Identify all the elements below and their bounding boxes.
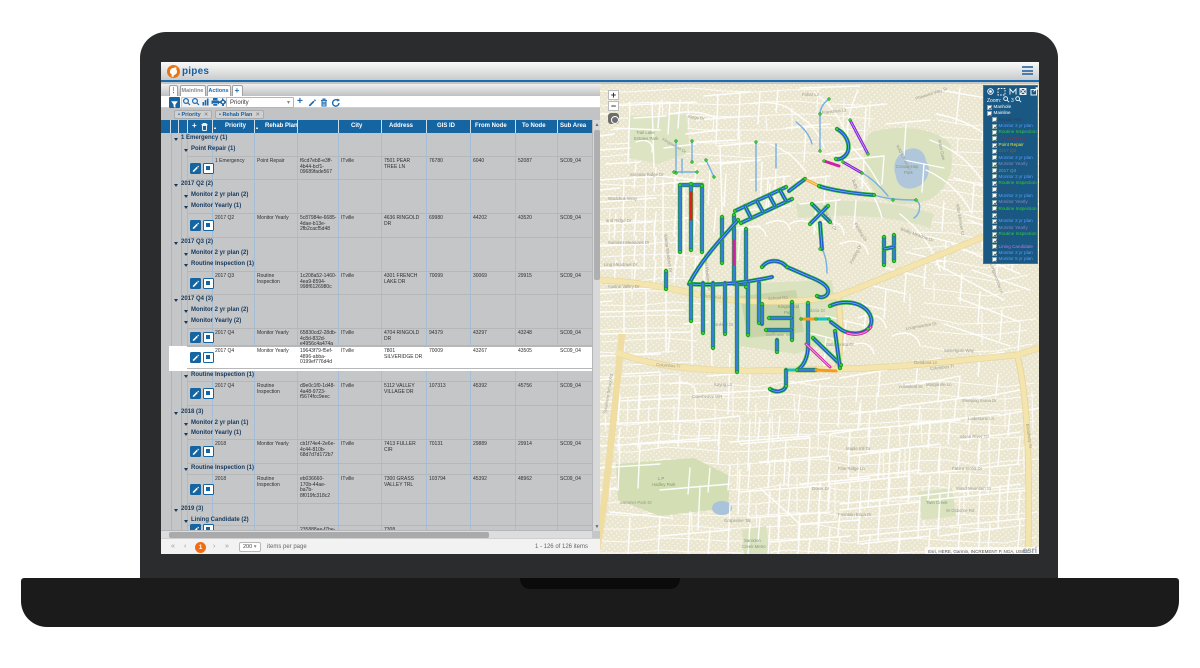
svg-text:Doser Dr: Doser Dr [812,486,830,491]
svg-text:Siosd Mountain St: Siosd Mountain St [956,486,992,491]
svg-text:Creek Metro: Creek Metro [742,544,766,549]
svg-text:Wodchuk Wray: Wodchuk Wray [608,196,638,201]
svg-text:Sleeping Siona Dr: Sleeping Siona Dr [962,398,997,403]
svg-text:Grapevine Tal: Grapevine Tal [724,518,750,523]
svg-text:Fohar Ln: Fohar Ln [802,92,820,97]
svg-text:Estates Park: Estates Park [634,136,659,141]
svg-text:Colerbeave WR: Colerbeave WR [692,394,722,399]
svg-text:Fountain Briga Dr: Fountain Briga Dr [838,512,872,517]
svg-text:Yellowleaf Dr: Yellowleaf Dr [898,384,923,389]
svg-text:L P: L P [658,476,664,481]
svg-text:Lodestone Ln: Lodestone Ln [968,416,995,421]
svg-text:Deadona Ln: Deadona Ln [914,360,938,365]
svg-text:Maple Inlf Dr: Maple Inlf Dr [846,446,871,451]
svg-text:Sweetgum Way: Sweetgum Way [944,348,975,353]
svg-text:routine Valley Dr: routine Valley Dr [608,284,640,289]
svg-text:Balladonica Dr: Balladonica Dr [826,342,855,347]
svg-text:Trail Lake: Trail Lake [636,130,655,135]
svg-text:Ling Meadows Dr: Ling Meadows Dr [604,262,638,267]
svg-text:Fine Ridge Ln: Fine Ridge Ln [838,466,865,471]
svg-text:Kayrig Ln: Kayrig Ln [714,382,733,387]
svg-text:W Osborne Rd: W Osborne Rd [946,508,975,513]
svg-text:and Ridge Dr: and Ridge Dr [606,218,632,223]
svg-text:Sanixton: Sanixton [744,538,761,543]
svg-text:Conow Hap: Conow Hap [896,164,919,169]
svg-text:Twin Creek: Twin Creek [926,500,948,505]
svg-text:Fabira Siona Dr: Fabira Siona Dr [952,466,983,471]
svg-text:Summer Park Dr: Summer Park Dr [620,500,653,505]
svg-text:Hadley Park: Hadley Park [652,482,676,487]
svg-text:Stone River Td: Stone River Td [960,434,989,439]
svg-text:Margarete Ln: Margarete Ln [926,382,952,387]
svg-text:Summer Meadows Dr: Summer Meadows Dr [608,240,650,245]
svg-text:Soleasa Ridge Dr: Soleasa Ridge Dr [630,172,664,177]
svg-text:Park: Park [904,170,914,175]
svg-text:Kingswood: Kingswood [778,304,800,309]
